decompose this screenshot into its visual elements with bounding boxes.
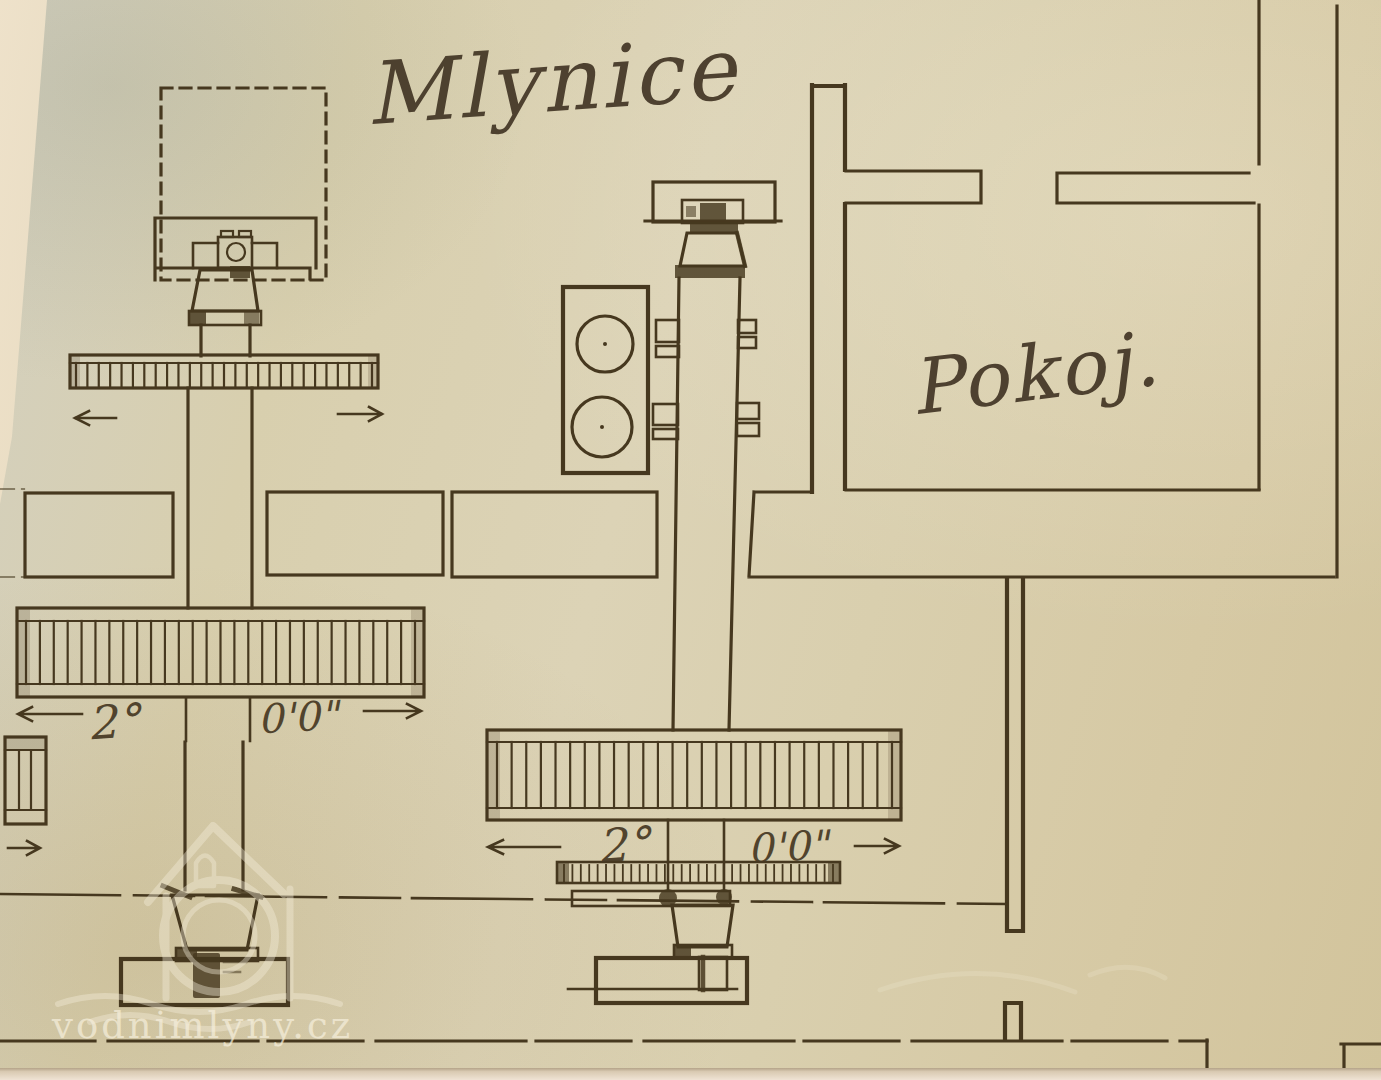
great-spur-gear	[487, 730, 901, 820]
bell-smudge	[230, 266, 250, 278]
center-spindle-assembly	[487, 182, 901, 1003]
walls	[0, 0, 1381, 1080]
dim-center-secondary: 0'0"	[746, 821, 832, 871]
beam-left	[25, 493, 173, 577]
floor-beams	[25, 492, 657, 577]
scanned-mill-plan-page: 2° 0'0" 2° 0'0" Mlynice Pokoj. vodnimlyn…	[0, 0, 1381, 1080]
left-spindle-assembly	[17, 88, 424, 1005]
spindle-eye	[227, 243, 245, 261]
collar-dark-right	[244, 312, 259, 324]
bearing-bell-bottom	[672, 905, 733, 947]
rotation-arrows	[75, 407, 382, 425]
title-mlynice: Mlynice	[362, 18, 742, 144]
top-tab-left	[221, 231, 233, 237]
main-shaft	[188, 388, 252, 608]
collar-dark-left	[190, 312, 206, 324]
title-pokoj: Pokoj.	[905, 313, 1165, 432]
lower-vertical-wall	[1007, 579, 1023, 931]
dim-left-primary: 2°	[86, 693, 145, 751]
door-wall-stubs	[846, 171, 1254, 203]
paper-bottom-edge	[0, 1068, 1381, 1080]
top-tab-right	[239, 231, 251, 237]
watermark-swirls	[880, 967, 1165, 992]
mill-plan-drawing: 2° 0'0" 2° 0'0" Mlynice Pokoj. vodnimlyn…	[0, 0, 1381, 1080]
right-wall	[1259, 0, 1337, 577]
neck-band	[690, 222, 738, 233]
pokoj-bottom-wall	[749, 490, 1334, 577]
edge-arrow	[8, 841, 40, 855]
spindle-top-block	[218, 237, 252, 268]
beam-right	[452, 492, 657, 577]
gland-collar	[675, 265, 745, 278]
gland	[680, 233, 745, 266]
dim-center-primary: 2°	[595, 816, 654, 874]
upper-shaft	[201, 325, 250, 356]
base-block	[596, 958, 747, 1003]
upper-crown-gear	[70, 355, 378, 388]
lower-wall-stub	[1005, 1003, 1021, 1038]
hopper-dashed-outline	[161, 88, 326, 280]
dim-left-secondary: 0'0"	[256, 692, 342, 742]
spindle-mortise	[193, 243, 277, 268]
beam-middle	[267, 492, 443, 575]
shaft-clamps	[653, 320, 759, 439]
main-shaft	[673, 278, 740, 730]
watermark-text: vodnimlyny.cz	[51, 1004, 353, 1047]
dimension-left: 2° 0'0"	[18, 692, 421, 751]
floor-dash-left	[0, 489, 24, 577]
roller-block	[563, 287, 648, 473]
partition-wall	[812, 85, 845, 492]
watermark-logo	[58, 826, 340, 1029]
great-spur-gear	[17, 608, 424, 697]
edge-partial-gear	[5, 737, 46, 855]
